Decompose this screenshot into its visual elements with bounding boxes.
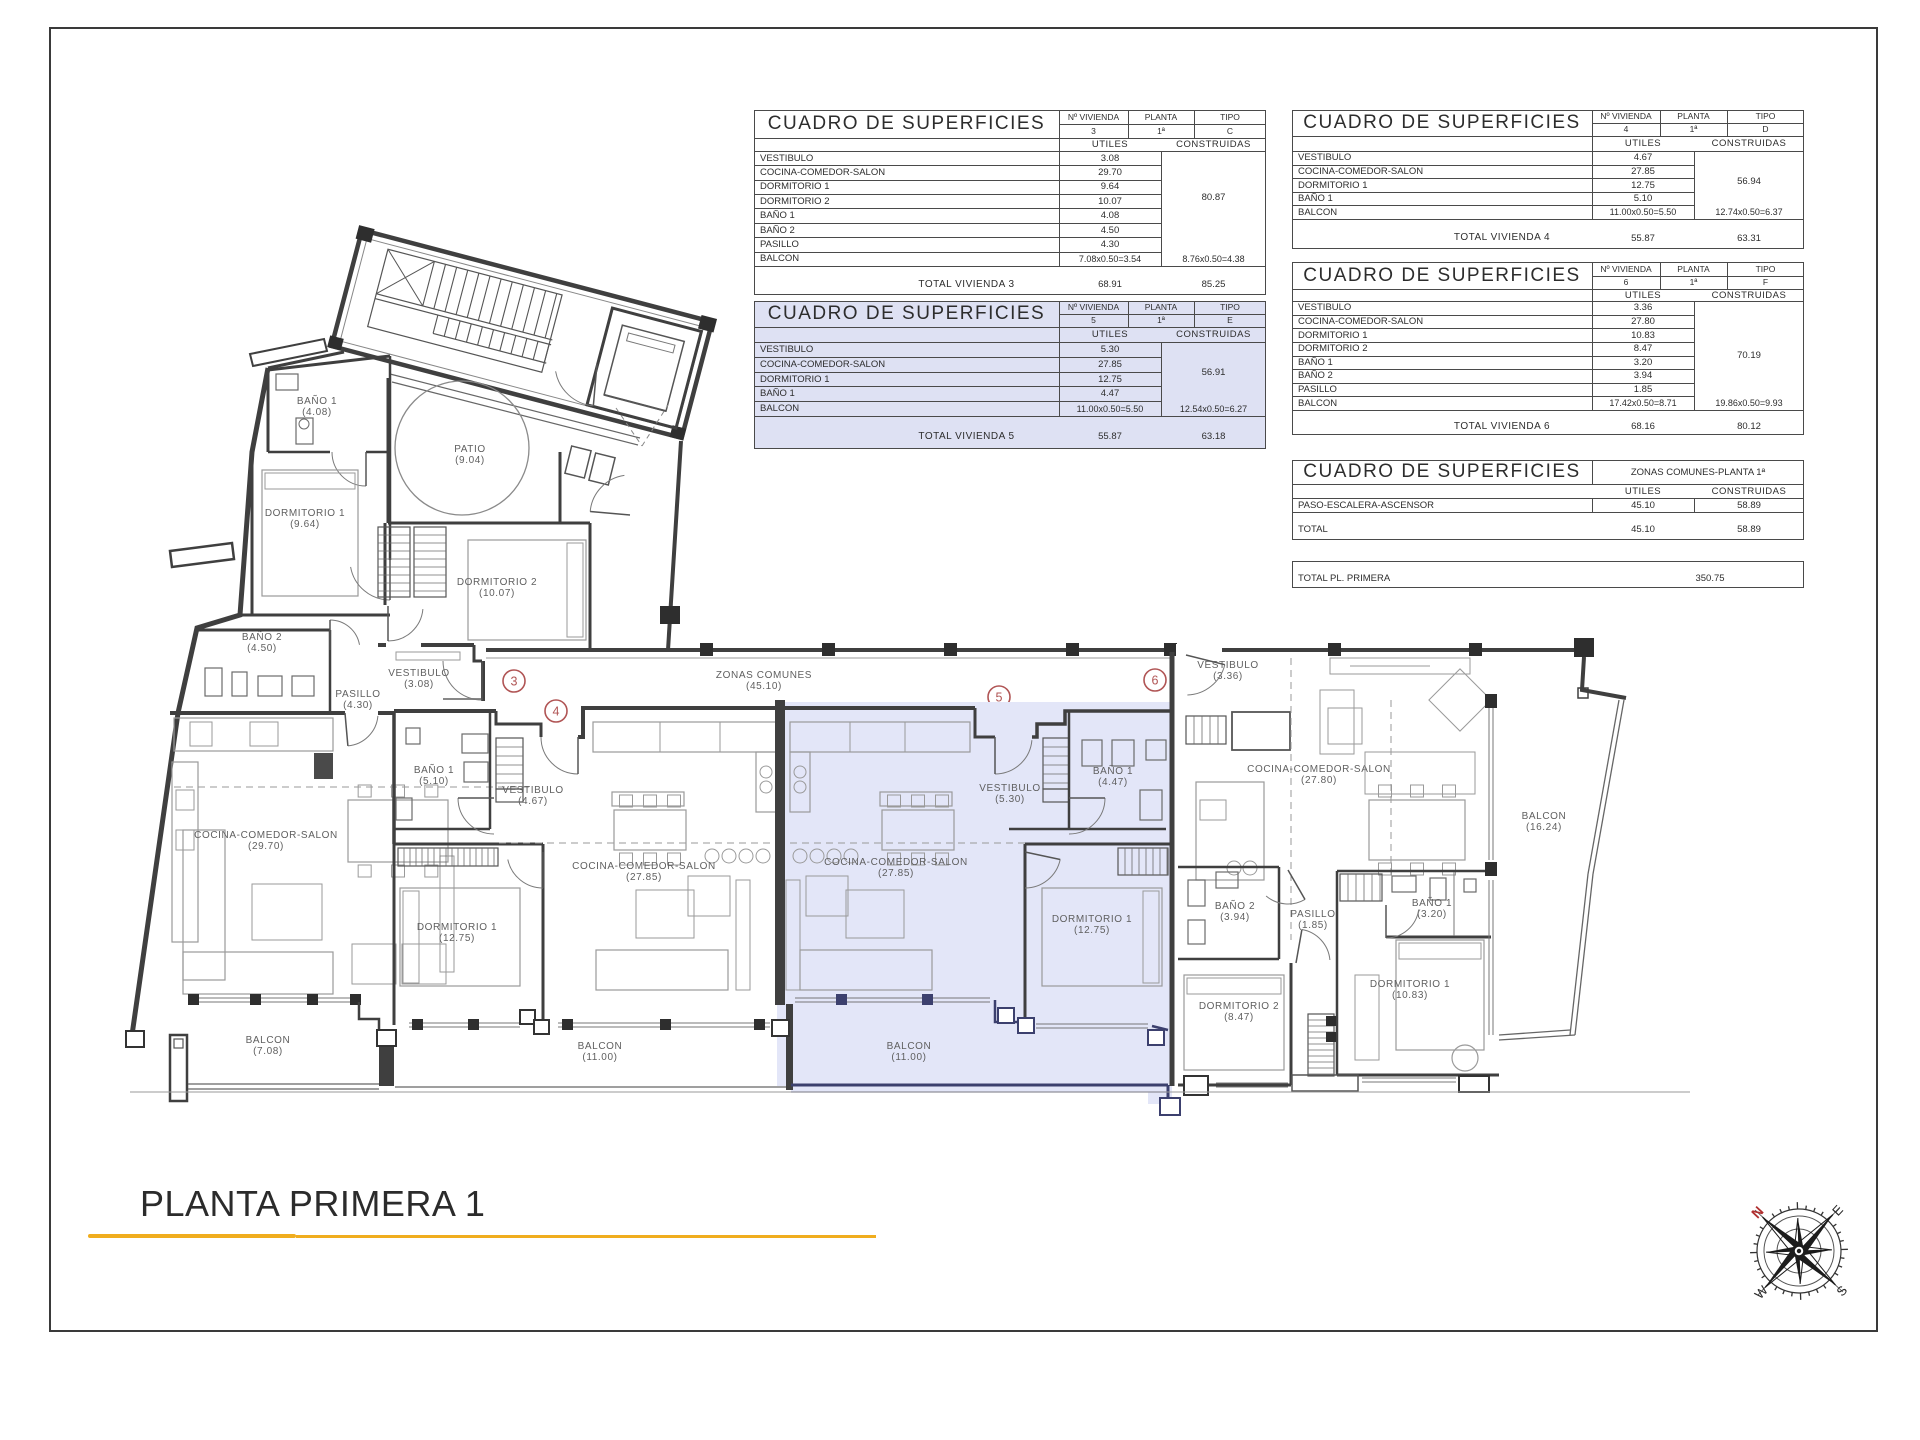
svg-text:(4.30): (4.30) — [343, 700, 373, 711]
svg-text:COCINA-COMEDOR-SALON: COCINA-COMEDOR-SALON — [194, 830, 338, 841]
svg-text:(45.10): (45.10) — [746, 681, 782, 692]
svg-text:(4.08): (4.08) — [302, 407, 332, 418]
svg-text:DORMITORIO 2: DORMITORIO 2 — [457, 577, 537, 588]
svg-text:BALCON: BALCON — [887, 1041, 932, 1052]
svg-text:BAÑO 1: BAÑO 1 — [1412, 896, 1452, 909]
svg-text:BAÑO 1: BAÑO 1 — [1093, 764, 1133, 777]
svg-text:VESTIBULO: VESTIBULO — [979, 783, 1041, 794]
svg-text:DORMITORIO 1: DORMITORIO 1 — [1052, 914, 1132, 925]
svg-text:DORMITORIO 1: DORMITORIO 1 — [1370, 979, 1450, 990]
svg-text:S: S — [1833, 1282, 1850, 1299]
svg-text:(8.47): (8.47) — [1224, 1012, 1254, 1023]
svg-text:BAÑO 1: BAÑO 1 — [297, 394, 337, 407]
svg-text:VESTIBULO: VESTIBULO — [502, 785, 564, 796]
svg-text:(10.83): (10.83) — [1392, 990, 1428, 1001]
svg-text:DORMITORIO 2: DORMITORIO 2 — [1199, 1001, 1279, 1012]
svg-text:(4.67): (4.67) — [518, 796, 548, 807]
svg-text:PASILLO: PASILLO — [335, 689, 380, 700]
svg-text:ZONAS COMUNES: ZONAS COMUNES — [716, 670, 812, 681]
svg-text:(10.07): (10.07) — [479, 588, 515, 599]
svg-text:(12.75): (12.75) — [439, 933, 475, 944]
svg-text:COCINA-COMEDOR-SALON: COCINA-COMEDOR-SALON — [572, 861, 716, 872]
svg-text:PASILLO: PASILLO — [1290, 909, 1335, 920]
svg-text:(3.20): (3.20) — [1417, 909, 1447, 920]
svg-text:BAÑO 2: BAÑO 2 — [1215, 899, 1255, 912]
svg-text:VESTIBULO: VESTIBULO — [1197, 660, 1259, 671]
svg-text:VESTIBULO: VESTIBULO — [388, 668, 450, 679]
svg-text:(3.08): (3.08) — [404, 679, 434, 690]
svg-text:(4.47): (4.47) — [1098, 777, 1128, 788]
svg-text:BAÑO 2: BAÑO 2 — [242, 630, 282, 643]
svg-text:3: 3 — [511, 675, 518, 689]
svg-text:(5.30): (5.30) — [995, 794, 1025, 805]
svg-text:DORMITORIO 1: DORMITORIO 1 — [265, 508, 345, 519]
svg-text:6: 6 — [1152, 674, 1159, 688]
svg-text:BALCON: BALCON — [1522, 811, 1567, 822]
svg-text:BALCON: BALCON — [578, 1041, 623, 1052]
svg-text:(3.94): (3.94) — [1220, 912, 1250, 923]
svg-text:PATIO: PATIO — [454, 444, 486, 455]
svg-text:BAÑO 1: BAÑO 1 — [414, 763, 454, 776]
svg-text:(7.08): (7.08) — [253, 1046, 283, 1057]
svg-text:(29.70): (29.70) — [248, 841, 284, 852]
svg-text:COCINA-COMEDOR-SALON: COCINA-COMEDOR-SALON — [1247, 764, 1391, 775]
svg-text:(9.04): (9.04) — [455, 455, 485, 466]
svg-text:(4.50): (4.50) — [247, 643, 277, 654]
svg-text:(5.10): (5.10) — [419, 776, 449, 787]
svg-text:(27.85): (27.85) — [878, 868, 914, 879]
svg-text:(27.85): (27.85) — [626, 872, 662, 883]
svg-text:(11.00): (11.00) — [582, 1052, 617, 1063]
svg-text:DORMITORIO 1: DORMITORIO 1 — [417, 922, 497, 933]
svg-text:(9.64): (9.64) — [290, 519, 320, 530]
svg-text:(16.24): (16.24) — [1526, 822, 1562, 833]
svg-text:(12.75): (12.75) — [1074, 925, 1110, 936]
svg-text:(27.80): (27.80) — [1301, 775, 1337, 786]
svg-text:4: 4 — [553, 705, 560, 719]
svg-text:(11.00): (11.00) — [891, 1052, 926, 1063]
svg-text:BALCON: BALCON — [246, 1035, 291, 1046]
svg-text:COCINA-COMEDOR-SALON: COCINA-COMEDOR-SALON — [824, 857, 968, 868]
